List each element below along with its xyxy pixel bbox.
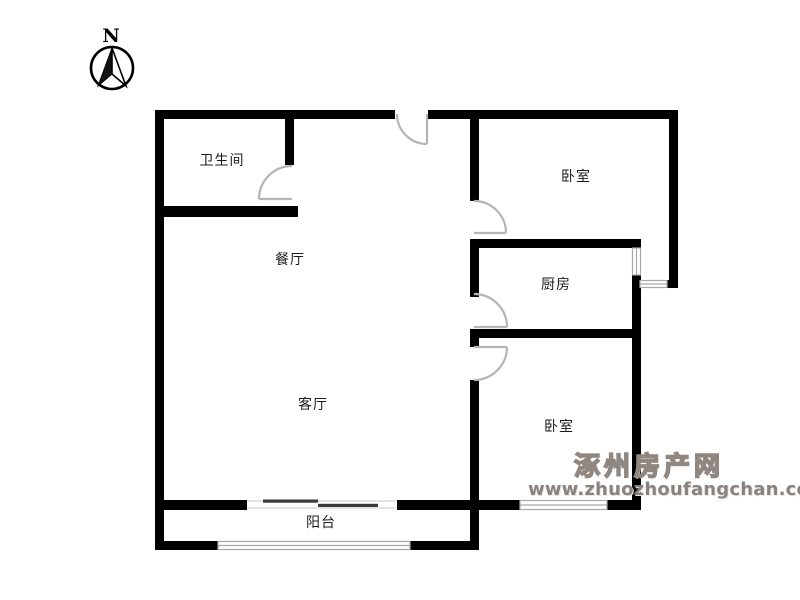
wall-balcony-bottom-a: [155, 541, 218, 550]
wall-top-right: [428, 110, 678, 119]
kitchen-window: [633, 248, 641, 275]
walls: [155, 110, 678, 550]
bedroom-south-window: [520, 501, 607, 510]
sliding-door: [247, 500, 397, 509]
compass-needle-dark: [98, 48, 112, 86]
wall-center-1: [470, 110, 479, 201]
notch-window: [640, 281, 667, 288]
room-label-balcony: 阳台: [306, 512, 336, 532]
wall-bathroom-right: [285, 110, 294, 165]
wall-left: [155, 110, 164, 550]
wall-south-a: [155, 500, 247, 510]
bedroom-south-door: [474, 347, 507, 380]
sliding-panel-1: [263, 500, 318, 503]
kitchen-door: [474, 294, 507, 327]
room-label-kitchen: 厨房: [541, 274, 571, 294]
room-label-bathroom: 卫生间: [200, 150, 245, 170]
wall-south-c: [607, 500, 641, 510]
bathroom-door: [259, 166, 292, 199]
room-label-dining: 餐厅: [275, 249, 305, 269]
wall-notch-corner: [667, 280, 678, 288]
wall-right-outer: [669, 110, 678, 288]
compass: [91, 47, 133, 89]
entrance-door: [397, 114, 427, 144]
balcony-window: [218, 542, 410, 550]
wall-center-2: [470, 240, 479, 297]
wall-kitchen-top: [470, 239, 641, 248]
wall-bathroom-bottom: [155, 206, 298, 217]
compass-needle-light: [112, 48, 126, 86]
bedroom-north-door: [474, 201, 506, 233]
room-label-bedroom-north: 卧室: [561, 166, 591, 186]
wall-top-left: [155, 110, 395, 119]
room-label-bedroom-south: 卧室: [544, 416, 574, 436]
doors: [259, 114, 507, 380]
wall-kitchen-bottom: [470, 329, 641, 338]
wall-kitchen-right-stub: [632, 239, 641, 248]
room-label-living: 客厅: [298, 394, 328, 414]
wall-balcony-bottom-b: [410, 541, 479, 550]
wall-south-b: [397, 500, 520, 510]
wall-kitchen-right: [632, 275, 641, 510]
wall-center-4: [470, 380, 479, 550]
floor-plan-canvas: [0, 0, 800, 600]
sliding-panel-2: [318, 504, 378, 507]
compass-north-label: N: [102, 25, 119, 47]
